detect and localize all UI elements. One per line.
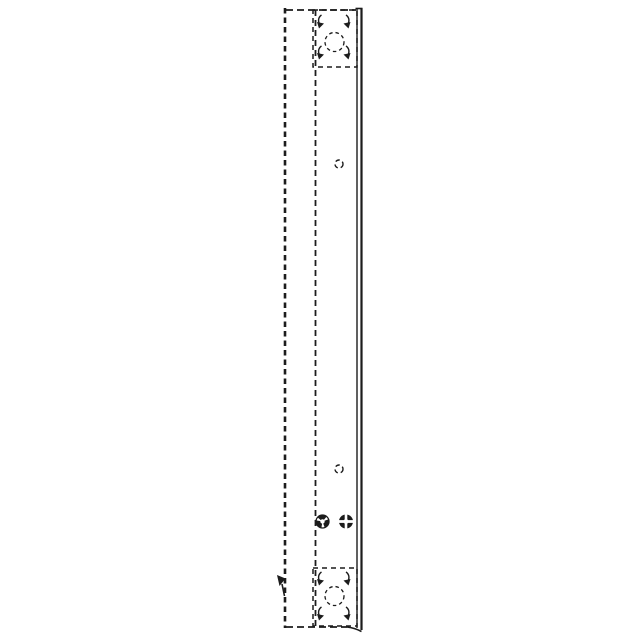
bottom-mount-pad-hole: [325, 587, 344, 606]
spot-weld-tick: [317, 579, 324, 586]
spot-weld-tick: [344, 579, 351, 586]
clip-fastener-symbol-center: [320, 519, 324, 523]
spot-weld-tick: [344, 22, 351, 29]
top-mount-pad-hole: [325, 33, 344, 52]
drawing-canvas: [0, 0, 640, 640]
bottom-right-curve: [347, 627, 362, 632]
spot-weld-tick: [317, 614, 324, 621]
clinch-fastener-symbol-center: [344, 519, 349, 524]
pilot-hole-lower: [335, 465, 343, 473]
pilot-hole-upper: [335, 160, 343, 168]
spot-weld-tick: [317, 53, 324, 60]
spot-weld-tick: [344, 614, 351, 621]
spot-weld-tick: [317, 22, 324, 29]
spot-weld-tick: [344, 53, 351, 60]
technical-drawing: [0, 0, 640, 640]
